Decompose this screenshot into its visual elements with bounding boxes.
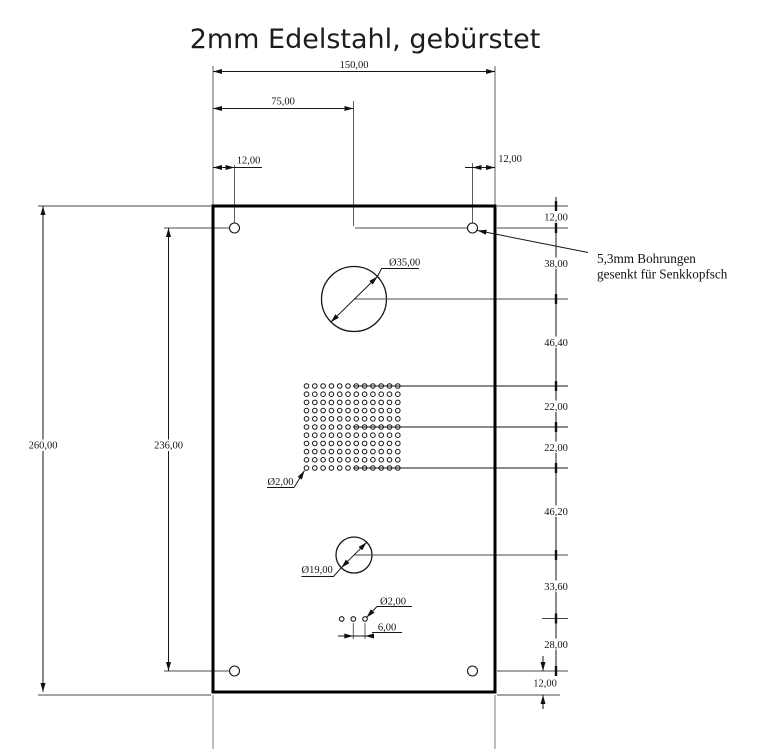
dim-bottom-right-inset: 12,00: [533, 679, 557, 690]
chain-dim-5: 46,20: [544, 507, 568, 518]
dim-overall-width: 150,00: [340, 60, 369, 71]
callout-line1: 5,3mm Bohrungen: [597, 251, 696, 266]
dim-hole-span: 236,00: [154, 441, 183, 452]
dim-overall-height: 260,00: [29, 441, 58, 452]
label-small-hole-dia: Ø2,00: [380, 597, 406, 608]
small-hole-2: [351, 617, 356, 622]
corner-hole-top-left: [230, 223, 240, 233]
dim-top-left-inset: 12,00: [237, 156, 261, 167]
countersink-callout: 5,3mm Bohrungen gesenkt für Senkkopfsch: [478, 231, 728, 282]
label-grid-hole-dia: Ø2,00: [268, 477, 294, 488]
chain-dim-3: 22,00: [544, 402, 568, 413]
chain-dim-1: 38,00: [544, 259, 568, 270]
corner-hole-bottom-right: [468, 666, 478, 676]
left-dimensions: 260,00 236,00: [23, 206, 189, 692]
top-dimensions: 150,00 75,00 12,00 12,00: [213, 60, 522, 168]
grid-hole-callout: Ø2,00: [267, 471, 305, 489]
chain-dim-2: 46,40: [544, 338, 568, 349]
dim-half-width: 75,00: [271, 97, 295, 108]
drawing-canvas: 150,00 75,00 12,00 12,00 260,00 236,00: [0, 0, 765, 749]
chain-dim-0: 12,00: [544, 213, 568, 224]
small-hole-1: [339, 617, 344, 622]
label-large-circle-dia: Ø35,00: [389, 258, 420, 269]
technical-drawing: 2mm Edelstahl, gebürstet: [0, 0, 765, 749]
chain-dim-6: 33,60: [544, 582, 568, 593]
dim-top-right-inset: 12,00: [498, 154, 522, 165]
corner-hole-bottom-left: [230, 666, 240, 676]
chain-dim-7: 28,00: [544, 640, 568, 651]
callout-line2: gesenkt für Senkkopfsch: [597, 267, 728, 282]
chain-dim-4: 22,00: [544, 443, 568, 454]
label-medium-circle-dia: Ø19,00: [302, 565, 333, 576]
dim-small-hole-pitch: 6,00: [378, 623, 396, 634]
extension-lines: [38, 66, 568, 749]
right-chain-dimension: 12,00 38,00 46,40 22,00 22,00 46,20 33,6…: [533, 197, 573, 709]
corner-hole-top-right: [468, 223, 478, 233]
small-hole-callout: Ø2,00 6,00: [338, 597, 412, 640]
